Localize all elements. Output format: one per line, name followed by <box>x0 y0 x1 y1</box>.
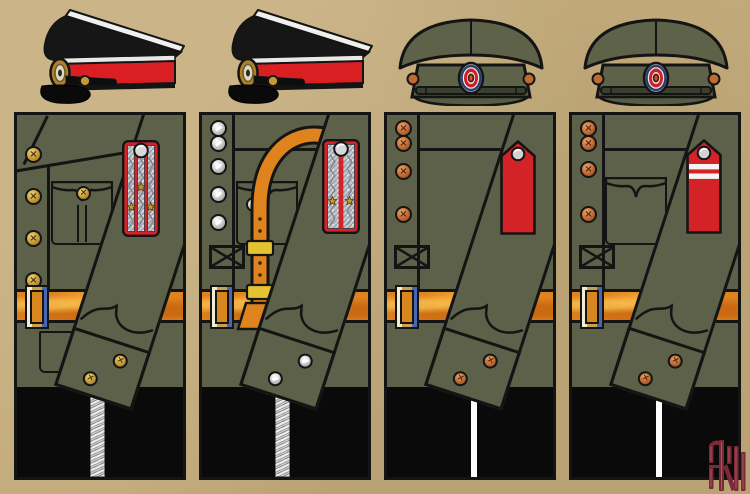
strap-button <box>80 76 90 86</box>
shoulder-board-3 <box>500 140 536 235</box>
brass-slide <box>247 241 273 255</box>
tunic-panel-1 <box>14 112 186 480</box>
cuff-button <box>111 352 130 371</box>
visor <box>41 85 91 103</box>
shoulder-board-2 <box>322 139 360 234</box>
belt-buckle <box>25 285 49 329</box>
sleeve <box>424 112 556 411</box>
tunic-button <box>395 135 412 152</box>
placket-line <box>47 165 50 293</box>
tunic-button <box>25 146 42 163</box>
tunic-button <box>580 161 597 178</box>
x-stitch-box <box>394 245 430 269</box>
side-button <box>524 74 535 85</box>
artist-monogram <box>706 437 748 493</box>
cockade-icon <box>644 63 668 93</box>
field-cap-front-3 <box>392 10 550 106</box>
peaked-cap-side-1 <box>12 6 190 104</box>
tunic-button <box>580 135 597 152</box>
cuff-button <box>481 352 500 371</box>
belt-buckle <box>395 285 419 329</box>
sleeve <box>54 112 186 411</box>
tunic-button <box>25 188 42 205</box>
cuff-button <box>636 369 655 388</box>
side-button <box>408 74 419 85</box>
center-stripe <box>339 145 344 229</box>
x-stitch-box <box>579 245 615 269</box>
shoulder-board-4 <box>686 139 722 234</box>
side-button <box>709 74 720 85</box>
visor <box>599 97 713 106</box>
buckle-frame <box>30 290 44 324</box>
visor <box>414 97 528 106</box>
tunic-button <box>395 163 412 180</box>
buckle-frame <box>400 290 414 324</box>
cuff-button <box>451 369 470 388</box>
pocket-flap <box>605 177 667 201</box>
shoulder-board-1 <box>122 140 160 237</box>
side-button <box>593 74 604 85</box>
peaked-cap-side-2 <box>200 6 378 104</box>
tunic-button <box>395 206 412 223</box>
cockade-icon <box>459 63 483 93</box>
tunic-button <box>25 230 42 247</box>
belt-buckle <box>580 285 604 329</box>
cuff-button <box>296 352 315 371</box>
field-cap-front-4 <box>577 10 735 106</box>
pocket-button <box>76 186 91 201</box>
cuff-button <box>266 369 285 388</box>
visor <box>229 85 279 103</box>
buckle-frame <box>585 290 599 324</box>
uniform-plate <box>0 0 750 494</box>
cuff-button <box>666 352 685 371</box>
cuff-button <box>81 369 100 388</box>
strap-button <box>268 76 278 86</box>
tunic-button <box>580 206 597 223</box>
pocket-box-pleat <box>77 205 87 242</box>
